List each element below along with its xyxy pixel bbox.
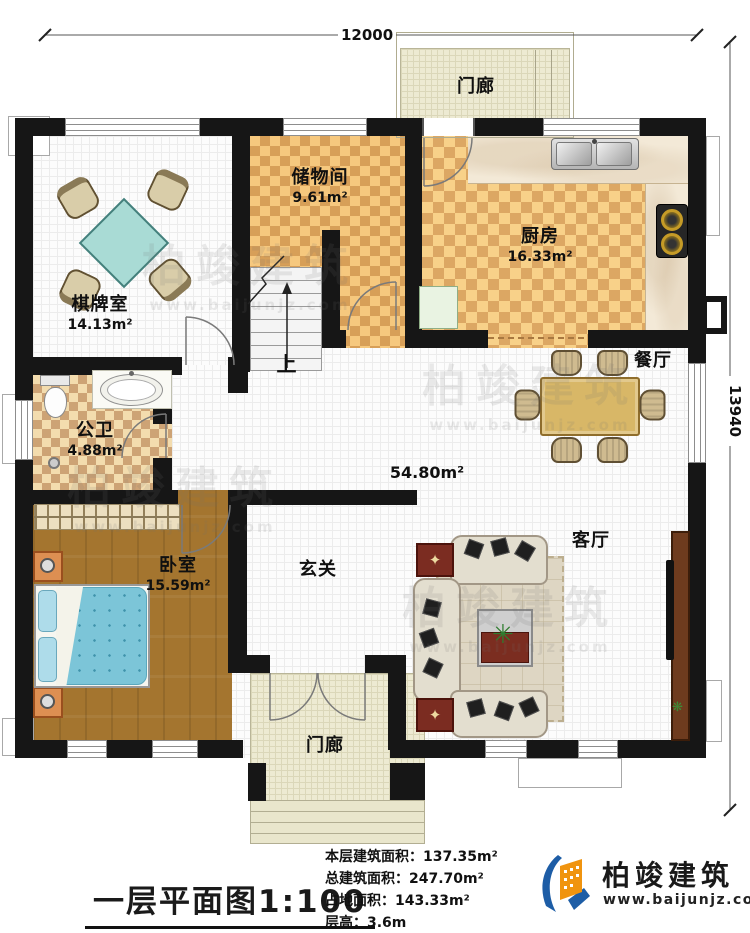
faucet-icon <box>129 371 134 376</box>
company-website: www.baijunjz.com <box>603 892 750 908</box>
wall-segment <box>15 490 178 505</box>
dining-chair <box>515 390 541 421</box>
wall-segment <box>232 118 250 372</box>
wall-segment <box>588 330 688 348</box>
room-label-dining: 餐厅 <box>593 350 713 373</box>
exterior-ledge <box>706 680 722 742</box>
window <box>283 118 367 136</box>
window <box>578 740 618 758</box>
wall-segment <box>228 357 248 393</box>
wall-segment <box>15 740 243 758</box>
stat-row: 层高：3.6m <box>325 912 498 933</box>
tv-icon <box>666 560 674 660</box>
stats-block: 本层建筑面积：137.35m² 总建筑面积：247.70m² 占地面积：143.… <box>325 846 498 933</box>
window <box>65 118 200 136</box>
sink-icon <box>107 379 156 401</box>
window <box>15 400 33 460</box>
door-opening <box>422 118 475 136</box>
wall-segment <box>247 490 417 505</box>
porch-bottom-steps <box>250 800 425 844</box>
stove-burner-icon <box>661 209 683 231</box>
dimension-width-label: 12000 <box>338 26 396 44</box>
dining-table <box>540 377 640 436</box>
exterior-ledge <box>2 394 16 464</box>
window <box>152 740 198 758</box>
toilet-icon <box>44 387 67 418</box>
room-label-bath: 公卫4.88m² <box>35 420 155 460</box>
room-label-hall-area: 54.80m² <box>367 463 487 483</box>
porch-pillar <box>248 763 266 801</box>
faucet-icon <box>592 139 597 144</box>
end-table: ✦ <box>416 698 454 732</box>
company-logo-icon <box>540 854 596 914</box>
window <box>543 118 640 136</box>
room-label-living: 客厅 <box>531 530 651 553</box>
end-table: ✦ <box>416 543 454 577</box>
wall-segment <box>422 330 488 348</box>
fridge <box>419 286 458 329</box>
exterior-ledge <box>518 758 622 788</box>
kitchen-sink-basin <box>596 142 632 166</box>
stat-row: 总建筑面积：247.70m² <box>325 868 498 890</box>
stairs-up-label: 上 <box>267 352 307 377</box>
dining-chair <box>551 350 582 376</box>
company-name: 柏竣建筑 <box>602 854 734 894</box>
room-label-foyer: 玄关 <box>258 559 378 582</box>
wall-segment <box>388 655 406 750</box>
room-label-bedroom: 卧室15.59m² <box>118 555 238 595</box>
stat-row: 本层建筑面积：137.35m² <box>325 846 498 868</box>
window <box>688 363 706 463</box>
window <box>67 740 107 758</box>
compass-icon: ✦ <box>429 551 442 569</box>
exterior-ledge <box>706 136 720 236</box>
stove-burner-icon <box>661 233 683 255</box>
dining-chair <box>597 437 628 463</box>
room-label-chess: 棋牌室14.13m² <box>40 294 160 334</box>
dining-chair <box>551 437 582 463</box>
stat-row: 占地面积：143.33m² <box>325 890 498 912</box>
room-label-porch-top: 门廊 <box>416 76 536 99</box>
wardrobe-rod <box>34 516 180 518</box>
wall-segment <box>322 330 346 348</box>
compass-icon: ✦ <box>429 706 442 724</box>
pillow <box>38 590 57 632</box>
porch-pillar <box>390 763 425 800</box>
kitchen-sink-basin <box>556 142 592 166</box>
speaker-icon <box>40 694 55 709</box>
floor-plan-canvas: ✳ ✦ ✦ ❋ <box>0 0 750 933</box>
porch-top-door-line <box>551 50 552 118</box>
window <box>485 740 527 758</box>
company-logo: 柏竣建筑 www.baijunjz.com <box>540 852 740 922</box>
toilet-icon <box>40 375 70 386</box>
room-label-storage: 储物间9.61m² <box>260 167 380 207</box>
wall-segment <box>390 740 706 758</box>
speaker-icon <box>40 558 55 573</box>
plant-icon: ✳ <box>492 620 514 650</box>
room-label-porch-bottom: 门廊 <box>265 735 385 758</box>
dimension-height-label: 13940 <box>726 376 744 446</box>
room-label-kitchen: 厨房16.33m² <box>480 226 600 266</box>
dining-chair <box>640 390 666 421</box>
plant-icon: ❋ <box>672 700 683 715</box>
chimney-flue <box>701 296 727 334</box>
pillow <box>38 637 57 682</box>
